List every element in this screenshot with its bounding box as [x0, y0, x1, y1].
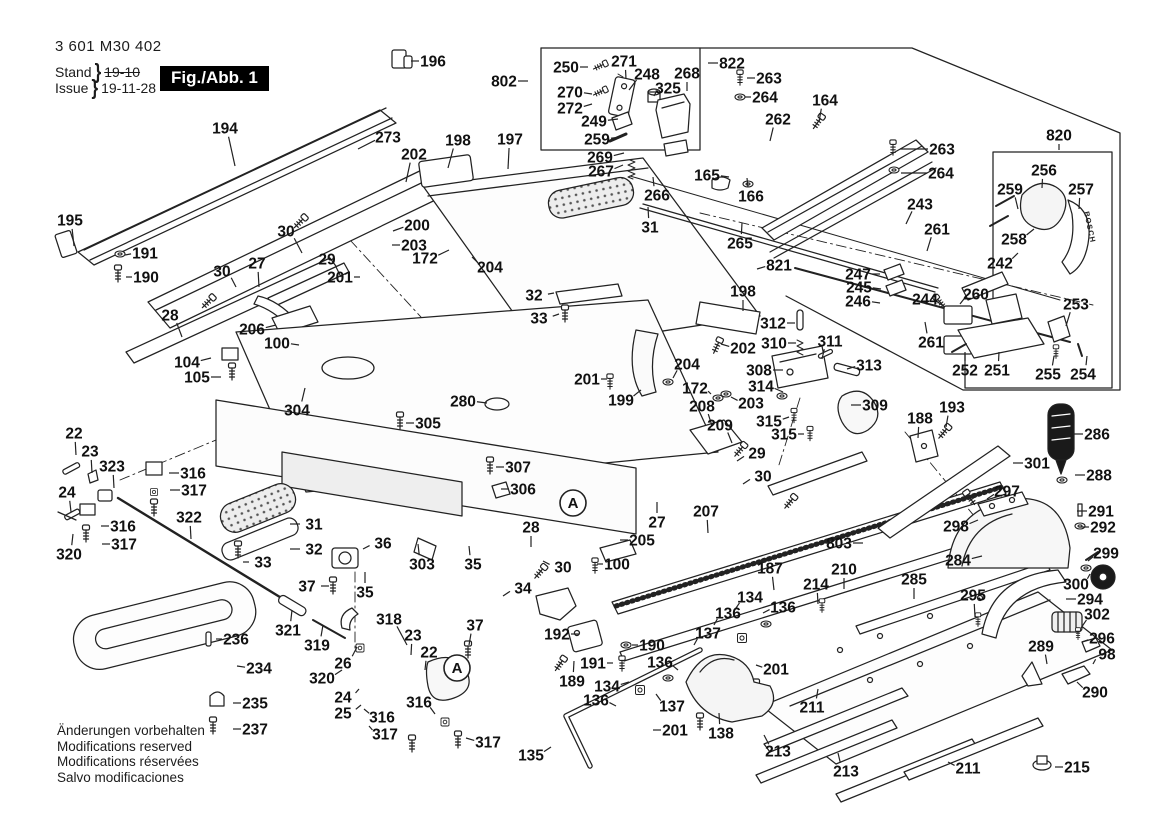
part-callout-802: 802 — [491, 74, 517, 91]
leader-line-187 — [773, 577, 774, 590]
leader-line-270 — [584, 93, 592, 94]
part-callout-29: 29 — [318, 252, 336, 269]
leader-line-172 — [438, 250, 449, 255]
part-callout-285: 285 — [901, 572, 927, 589]
leader-line-322 — [190, 526, 191, 539]
part-callout-253: 253 — [1063, 297, 1089, 314]
part-callout-297: 297 — [994, 484, 1020, 501]
leader-line-22 — [75, 442, 76, 455]
part-callout-313: 313 — [856, 358, 882, 375]
part-callout-196: 196 — [420, 54, 446, 71]
part-callout-320: 320 — [56, 547, 82, 564]
part-callout-37: 37 — [466, 618, 483, 635]
part-callout-288: 288 — [1086, 468, 1112, 485]
leader-line-206 — [266, 325, 276, 328]
part-callout-803: 803 — [826, 536, 852, 553]
revision-note-line-fr: Modifications réservées — [57, 754, 205, 770]
leader-line-201 — [756, 665, 762, 667]
part-callout-821: 821 — [766, 258, 792, 275]
handle-286 — [1048, 404, 1074, 474]
leader-line-203 — [731, 397, 738, 400]
part-callout-273: 273 — [375, 130, 401, 147]
part-callout-31: 31 — [305, 517, 323, 534]
leader-line-34 — [503, 591, 510, 596]
part-callout-820: 820 — [1046, 128, 1072, 145]
bracket-104 — [222, 348, 238, 360]
part-callout-236: 236 — [223, 632, 249, 649]
part-callout-262: 262 — [765, 112, 791, 129]
part-callout-286: 286 — [1084, 427, 1110, 444]
part-callout-235: 235 — [242, 696, 268, 713]
part-callout-325: 325 — [655, 81, 681, 98]
leader-line-821 — [757, 267, 765, 269]
part-callout-22: 22 — [65, 426, 82, 443]
part-callout-214: 214 — [803, 577, 829, 594]
part-callout-295: 295 — [960, 588, 986, 605]
part-callout-204: 204 — [477, 260, 503, 277]
part-callout-215: 215 — [1064, 760, 1090, 777]
detail-marker-label-A: A — [568, 495, 579, 512]
brace-glyph: } — [91, 78, 98, 98]
leader-line-261 — [925, 322, 927, 333]
leader-line-234 — [237, 666, 245, 667]
part-callout-290: 290 — [1082, 685, 1108, 702]
leader-line-265 — [741, 223, 742, 234]
part-callout-255: 255 — [1035, 367, 1061, 384]
leader-line-315 — [783, 417, 789, 419]
detail-marker-label-A: A — [452, 660, 463, 677]
revision-note-line-en: Modifications reserved — [57, 739, 205, 755]
part-callout-32: 32 — [525, 288, 542, 305]
part-callout-314: 314 — [748, 379, 774, 396]
part-callout-321: 321 — [275, 623, 301, 640]
part-callout-260: 260 — [963, 287, 989, 304]
part-callout-194: 194 — [212, 121, 238, 138]
plate-248 — [608, 76, 635, 117]
leader-line-200 — [393, 227, 403, 231]
part-callout-29: 29 — [748, 446, 766, 463]
leader-line-246 — [872, 302, 880, 303]
part-callout-32: 32 — [305, 542, 322, 559]
part-callout-100: 100 — [604, 557, 630, 574]
leader-line-317 — [466, 738, 474, 740]
part-callout-308: 308 — [746, 363, 772, 380]
rail-262 — [762, 140, 928, 240]
part-callout-272: 272 — [557, 101, 583, 118]
revision-note-line-es: Salvo modificaciones — [57, 770, 205, 786]
part-callout-302: 302 — [1084, 607, 1110, 624]
leader-line-35 — [469, 546, 470, 555]
part-callout-136: 136 — [715, 606, 741, 623]
parts-diagram-page: { "header": { "part_number": "3 601 M30 … — [0, 0, 1169, 826]
part-callout-31: 31 — [641, 220, 659, 237]
part-callout-35: 35 — [356, 585, 374, 602]
part-callout-189: 189 — [559, 674, 585, 691]
leader-line-30 — [743, 479, 750, 484]
part-callout-209: 209 — [707, 418, 733, 435]
lever-256 — [1021, 183, 1066, 229]
part-callout-258: 258 — [1001, 232, 1027, 249]
part-callout-198: 198 — [730, 284, 756, 301]
leader-line-253 — [1066, 312, 1070, 326]
part-callout-280: 280 — [450, 394, 476, 411]
part-callout-249: 249 — [581, 114, 607, 131]
part-callout-136: 136 — [647, 655, 673, 672]
part-callout-30: 30 — [554, 560, 571, 577]
part-callout-164: 164 — [812, 93, 838, 110]
leader-line-321 — [291, 610, 292, 621]
leader-line-36 — [363, 546, 370, 549]
part-callout-191: 191 — [132, 246, 158, 263]
part-callout-33: 33 — [530, 311, 548, 328]
hinge-196 — [392, 50, 412, 68]
part-callout-27: 27 — [248, 256, 265, 273]
part-callout-316: 316 — [369, 710, 395, 727]
part-callout-213: 213 — [833, 764, 859, 781]
leader-line-320 — [72, 534, 73, 545]
leader-line-31 — [648, 207, 649, 218]
part-callout-264: 264 — [752, 90, 778, 107]
leader-line-27 — [258, 272, 259, 287]
leader-line-22 — [425, 661, 426, 670]
part-callout-192: 192 — [544, 627, 570, 644]
leader-line-136 — [673, 666, 678, 670]
leader-line-189 — [573, 661, 574, 672]
part-callout-319: 319 — [304, 638, 330, 655]
part-callout-202: 202 — [401, 147, 427, 164]
part-callout-30: 30 — [213, 264, 230, 281]
part-callout-266: 266 — [644, 188, 670, 205]
leader-line-25 — [356, 705, 361, 709]
part-callout-263: 263 — [929, 142, 955, 159]
stand-value: 19-10 — [104, 64, 140, 80]
part-callout-306: 306 — [510, 482, 536, 499]
bracket-36 — [332, 548, 358, 568]
part-callout-137: 137 — [695, 626, 721, 643]
part-callout-37: 37 — [298, 579, 315, 596]
stand-label: Stand — [55, 64, 92, 80]
leader-line-272 — [584, 104, 592, 106]
part-callout-138: 138 — [708, 726, 734, 743]
leader-line-259 — [1015, 197, 1018, 209]
part-callout-28: 28 — [161, 308, 179, 325]
part-callout-303: 303 — [409, 557, 435, 574]
part-callout-172: 172 — [682, 381, 708, 398]
part-callout-261: 261 — [918, 335, 944, 352]
part-callout-317: 317 — [475, 735, 501, 752]
issue-label: Issue — [55, 80, 88, 96]
part-callout-320: 320 — [309, 671, 335, 688]
part-callout-204: 204 — [674, 357, 700, 374]
part-callout-105: 105 — [184, 370, 210, 387]
rail-29b — [768, 452, 867, 495]
part-callout-284: 284 — [945, 553, 971, 570]
leader-line-104 — [201, 358, 211, 361]
part-callout-137: 137 — [659, 699, 685, 716]
part-callout-23: 23 — [81, 444, 99, 461]
part-callout-322: 322 — [176, 510, 202, 527]
part-callout-187: 187 — [757, 561, 783, 578]
leader-line-242 — [1012, 253, 1018, 259]
leader-line-207 — [707, 520, 708, 533]
part-callout-24: 24 — [58, 485, 76, 502]
revision-note-line-de: Änderungen vorbehalten — [57, 723, 205, 739]
part-callout-134: 134 — [737, 590, 763, 607]
leader-line-188 — [918, 427, 919, 438]
leader-line-262 — [770, 127, 773, 141]
part-callout-208: 208 — [689, 399, 715, 416]
part-callout-323: 323 — [99, 459, 125, 476]
leader-line-255 — [1052, 356, 1054, 365]
leader-line-214 — [817, 593, 818, 604]
part-callout-267: 267 — [588, 164, 614, 181]
leader-line-23 — [91, 460, 92, 473]
leader-line-197 — [508, 148, 509, 169]
part-callout-210: 210 — [831, 562, 857, 579]
part-callout-206: 206 — [239, 322, 265, 339]
part-callout-265: 265 — [727, 236, 753, 253]
part-callout-201: 201 — [662, 723, 688, 740]
part-callout-318: 318 — [376, 612, 402, 629]
part-callout-316: 316 — [180, 466, 206, 483]
leader-line-138 — [719, 713, 720, 724]
part-callout-305: 305 — [415, 416, 441, 433]
part-callout-317: 317 — [181, 483, 207, 500]
leader-line-254 — [1086, 356, 1087, 365]
part-callout-22: 22 — [420, 645, 437, 662]
part-callout-298: 298 — [943, 519, 969, 536]
plate-192 — [567, 620, 603, 653]
revision-note: Änderungen vorbehalten Modifications res… — [57, 723, 205, 785]
exploded-parts-diagram: 1942731951911901961981972022002031722043… — [0, 0, 1169, 826]
part-callout-291: 291 — [1088, 504, 1114, 521]
leader-line-319 — [321, 625, 323, 636]
part-callout-254: 254 — [1070, 367, 1096, 384]
leader-line-23 — [411, 644, 412, 655]
part-callout-309: 309 — [862, 398, 888, 415]
part-callout-315: 315 — [771, 427, 797, 444]
part-callout-28: 28 — [522, 520, 540, 537]
part-callout-292: 292 — [1090, 520, 1116, 537]
part-callout-822: 822 — [719, 56, 745, 73]
part-callout-307: 307 — [505, 460, 531, 477]
part-callout-264: 264 — [928, 166, 954, 183]
leader-line-273 — [358, 140, 375, 149]
part-callout-172: 172 — [412, 251, 438, 268]
block-268 — [656, 94, 690, 138]
part-callout-299: 299 — [1093, 546, 1119, 563]
part-callout-205: 205 — [629, 533, 655, 550]
part-callout-188: 188 — [907, 411, 933, 428]
part-callout-301: 301 — [1024, 456, 1050, 473]
part-callout-98: 98 — [1098, 647, 1116, 664]
part-callout-243: 243 — [907, 197, 933, 214]
part-callout-193: 193 — [939, 400, 965, 417]
bracket-34 — [536, 588, 576, 620]
part-callout-195: 195 — [57, 213, 83, 230]
part-callout-135: 135 — [518, 748, 544, 765]
part-callout-23: 23 — [404, 628, 422, 645]
leader-line-323 — [113, 475, 114, 488]
part-callout-259: 259 — [584, 132, 610, 149]
insert-plate-234 — [68, 577, 261, 675]
leader-line-269 — [614, 153, 624, 156]
part-callout-259: 259 — [997, 182, 1023, 199]
part-callout-203: 203 — [738, 396, 764, 413]
part-callout-251: 251 — [984, 363, 1010, 380]
leader-line-191 — [125, 254, 131, 255]
hook-35 — [341, 608, 358, 630]
part-callout-250: 250 — [553, 60, 579, 77]
part-callout-252: 252 — [952, 363, 978, 380]
leader-line-172 — [708, 391, 711, 394]
part-callout-190: 190 — [639, 638, 665, 655]
part-callout-242: 242 — [987, 256, 1013, 273]
leader-line-295 — [974, 604, 975, 617]
part-callout-317: 317 — [111, 537, 137, 554]
leader-line-257 — [1079, 198, 1080, 209]
part-callout-100: 100 — [264, 336, 290, 353]
part-callout-317: 317 — [372, 727, 398, 744]
foot-215 — [1033, 756, 1051, 770]
issue-block: Stand } 19-10 Issue } 19-11-28 — [55, 64, 162, 96]
part-callout-36: 36 — [374, 536, 392, 553]
leader-line-98 — [1093, 659, 1096, 664]
plate-188 — [910, 430, 938, 462]
document-part-number: 3 601 M30 402 — [55, 38, 162, 55]
part-callout-201: 201 — [574, 372, 600, 389]
part-callout-33: 33 — [254, 555, 272, 572]
part-callout-30: 30 — [277, 224, 294, 241]
part-callout-198: 198 — [445, 133, 471, 150]
part-callout-166: 166 — [738, 189, 764, 206]
part-callout-200: 200 — [404, 218, 430, 235]
part-callout-312: 312 — [760, 316, 786, 333]
part-callout-24: 24 — [334, 690, 352, 707]
part-callout-34: 34 — [514, 581, 532, 598]
part-callout-263: 263 — [756, 71, 782, 88]
part-callout-257: 257 — [1068, 182, 1094, 199]
part-callout-256: 256 — [1031, 163, 1057, 180]
leader-line-258 — [1027, 229, 1034, 235]
part-callout-30: 30 — [754, 469, 771, 486]
part-callout-26: 26 — [334, 656, 352, 673]
part-callout-136: 136 — [583, 693, 609, 710]
leader-line-24 — [70, 501, 71, 512]
part-callout-207: 207 — [693, 504, 719, 521]
title-block: 3 601 M30 402 Stand } 19-10 Issue } 19-1… — [55, 38, 162, 96]
part-callout-27: 27 — [648, 515, 665, 532]
issue-value: 19-11-28 — [101, 80, 156, 96]
part-callout-199: 199 — [608, 393, 634, 410]
part-callout-270: 270 — [557, 85, 583, 102]
part-callout-201: 201 — [327, 270, 353, 287]
leader-line-135 — [544, 747, 551, 752]
part-callout-136: 136 — [770, 600, 796, 617]
part-callout-234: 234 — [246, 661, 272, 678]
part-callout-296: 296 — [1089, 631, 1115, 648]
leader-line-29 — [737, 456, 744, 461]
part-callout-201: 201 — [763, 662, 789, 679]
part-callout-310: 310 — [761, 336, 787, 353]
part-callout-202: 202 — [730, 341, 756, 358]
foot-138 — [686, 654, 774, 722]
part-callout-311: 311 — [817, 334, 842, 351]
part-callout-211: 211 — [955, 761, 980, 778]
part-callout-25: 25 — [334, 706, 352, 723]
part-callout-211: 211 — [799, 700, 824, 717]
part-callout-237: 237 — [242, 722, 268, 739]
leader-line-314 — [775, 388, 783, 392]
leader-line-202 — [721, 344, 729, 346]
leader-line-194 — [229, 137, 235, 166]
leader-line-261 — [927, 237, 931, 251]
part-callout-191: 191 — [580, 656, 606, 673]
part-callout-244: 244 — [912, 292, 938, 309]
part-callout-165: 165 — [694, 168, 720, 185]
part-callout-190: 190 — [133, 270, 159, 287]
figure-label-badge: Fig./Abb. 1 — [160, 66, 269, 91]
part-callout-316: 316 — [110, 519, 136, 536]
part-callout-304: 304 — [284, 403, 310, 420]
base-251 — [958, 294, 1044, 358]
leader-line-24 — [356, 689, 359, 693]
part-callout-316: 316 — [406, 695, 432, 712]
part-callout-35: 35 — [464, 557, 482, 574]
leader-line-136 — [609, 703, 616, 706]
part-callout-246: 246 — [845, 294, 871, 311]
part-callout-289: 289 — [1028, 639, 1054, 656]
part-callout-261: 261 — [924, 222, 950, 239]
part-callout-197: 197 — [497, 132, 523, 149]
part-callout-213: 213 — [765, 744, 791, 761]
